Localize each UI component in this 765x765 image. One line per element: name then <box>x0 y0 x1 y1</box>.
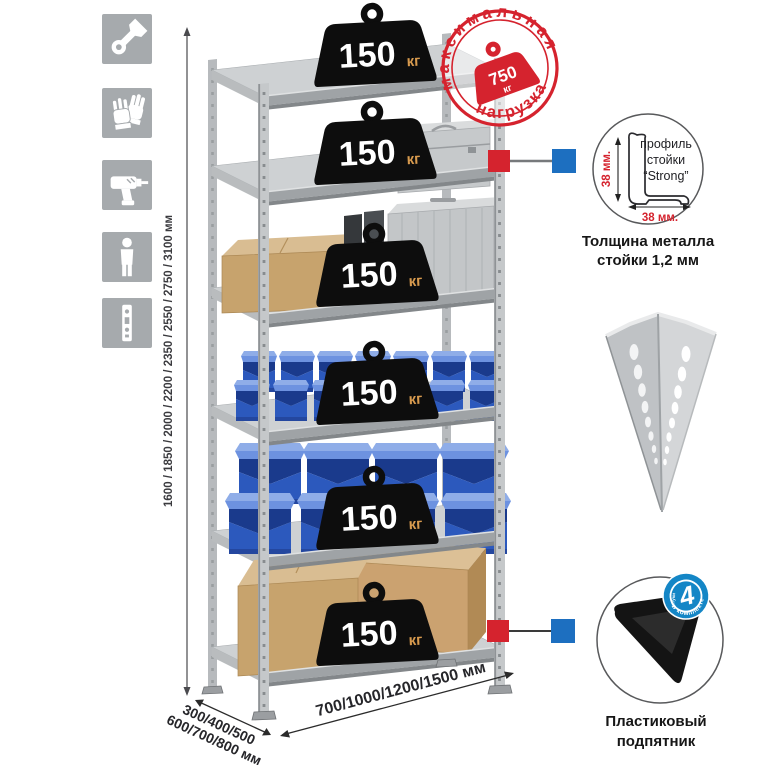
load-badge-2: 150 кг <box>310 101 436 185</box>
load-unit: кг <box>408 632 423 650</box>
load-value: 150 <box>340 373 399 414</box>
product-infographic: 1600 / 1850 / 2000 / 2200 / 2350 / 2550 … <box>0 0 765 765</box>
load-value: 150 <box>340 498 399 539</box>
profile-label-line2: стойки <box>647 153 685 167</box>
load-value: 150 <box>340 255 399 296</box>
profile-caption-line2: стойки 1,2 мм <box>597 252 699 269</box>
profile-caption-line1: Толщина металла <box>582 233 715 250</box>
arrow-up-icon <box>184 27 191 36</box>
load-unit: кг <box>406 151 421 169</box>
profile-vertical-dim: 38 мм. <box>601 151 613 187</box>
load-value: 150 <box>340 614 399 655</box>
load-unit: кг <box>408 273 423 291</box>
foot-detail: 4 штуки в комплекте Пластиковый подпятни… <box>597 568 723 750</box>
arrow-down-icon <box>184 687 191 696</box>
profile-detail: 38 мм. 38 мм. профиль стойки “Strong” То… <box>582 114 715 269</box>
arrow-left-icon <box>280 730 290 738</box>
profile-label-line1: профиль <box>640 137 692 151</box>
height-dimension: 1600 / 1850 / 2000 / 2200 / 2350 / 2550 … <box>163 27 191 696</box>
top-callout <box>488 149 576 173</box>
profile-horizontal-dim: 38 мм. <box>642 212 678 224</box>
blue-marker-top <box>552 149 576 173</box>
red-marker-top <box>488 150 510 172</box>
angle-profile-image <box>606 314 716 512</box>
load-unit: кг <box>408 516 423 534</box>
load-badge-1: 150 кг <box>310 3 436 87</box>
depth-dimension: 300/400/500 600/700/800 мм <box>164 697 271 765</box>
load-unit: кг <box>408 391 423 409</box>
arrow-right-icon <box>504 672 514 680</box>
load-value: 150 <box>338 35 397 76</box>
red-marker-bottom <box>487 620 509 642</box>
foot-caption-line2: подпятник <box>617 733 696 750</box>
shelving-scene: 1600 / 1850 / 2000 / 2200 / 2350 / 2550 … <box>0 0 765 765</box>
bottom-callout <box>487 619 575 643</box>
height-dimension-label: 1600 / 1850 / 2000 / 2200 / 2350 / 2550 … <box>163 215 175 507</box>
profile-label-line3: “Strong” <box>643 169 688 183</box>
blue-marker-bottom <box>551 619 575 643</box>
load-value: 150 <box>338 133 397 174</box>
foot-caption-line1: Пластиковый <box>605 713 706 730</box>
max-load-stamp: максимальная нагрузка 750 кг <box>416 0 581 144</box>
load-unit: кг <box>406 53 421 71</box>
